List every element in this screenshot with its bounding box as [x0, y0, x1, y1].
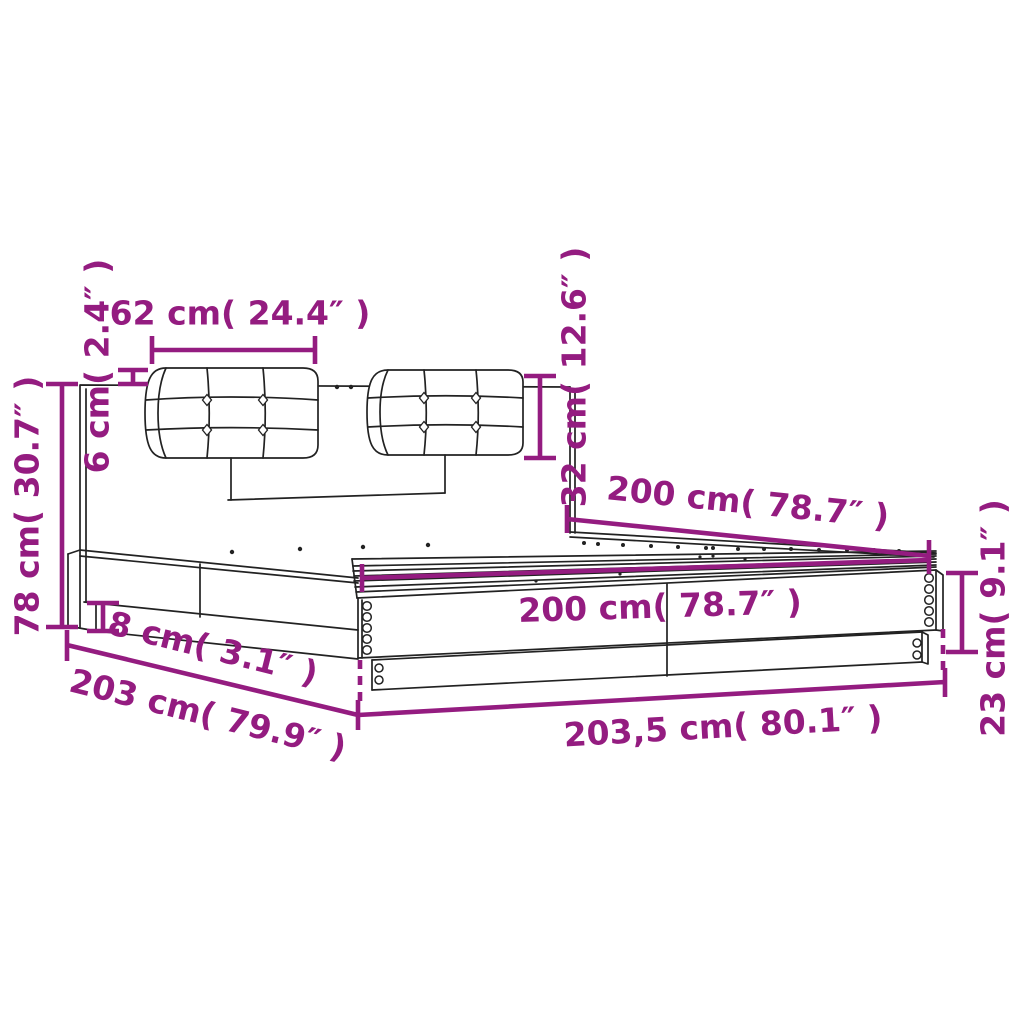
- dim-label-cushion-overhang: 6 cm( 2.4″ ): [78, 259, 117, 474]
- dim-label-headboard-height: 78 cm( 30.7″ ): [8, 376, 47, 637]
- dim-cushion-height: 32 cm( 12.6″ ): [524, 247, 594, 508]
- bed-dimension-diagram: 62 cm( 24.4″ ) 6 cm( 2.4″ ) 78 cm( 30.7″…: [0, 0, 1024, 1024]
- headboard-cushion-right: [367, 370, 523, 493]
- headboard-cushion-left: [145, 368, 318, 500]
- diagram-canvas: 62 cm( 24.4″ ) 6 cm( 2.4″ ) 78 cm( 30.7″…: [0, 0, 1024, 1024]
- dim-label-cushion-height: 32 cm( 12.6″ ): [555, 247, 594, 508]
- dim-label-total-length: 203,5 cm( 80.1″ ): [563, 698, 884, 755]
- dim-label-cushion-width: 62 cm( 24.4″ ): [110, 294, 371, 333]
- dim-rail-height: 23 cm( 9.1″ ): [943, 499, 1013, 737]
- dim-cushion-width: 62 cm( 24.4″ ): [110, 294, 371, 364]
- dim-label-slat-length: 200 cm( 78.7″ ): [518, 582, 803, 630]
- dim-cushion-overhang: 6 cm( 2.4″ ): [78, 259, 148, 474]
- dim-label-rail-height: 23 cm( 9.1″ ): [974, 499, 1013, 737]
- plinth: [372, 632, 928, 690]
- dim-total-length: 203,5 cm( 80.1″ ): [358, 660, 945, 754]
